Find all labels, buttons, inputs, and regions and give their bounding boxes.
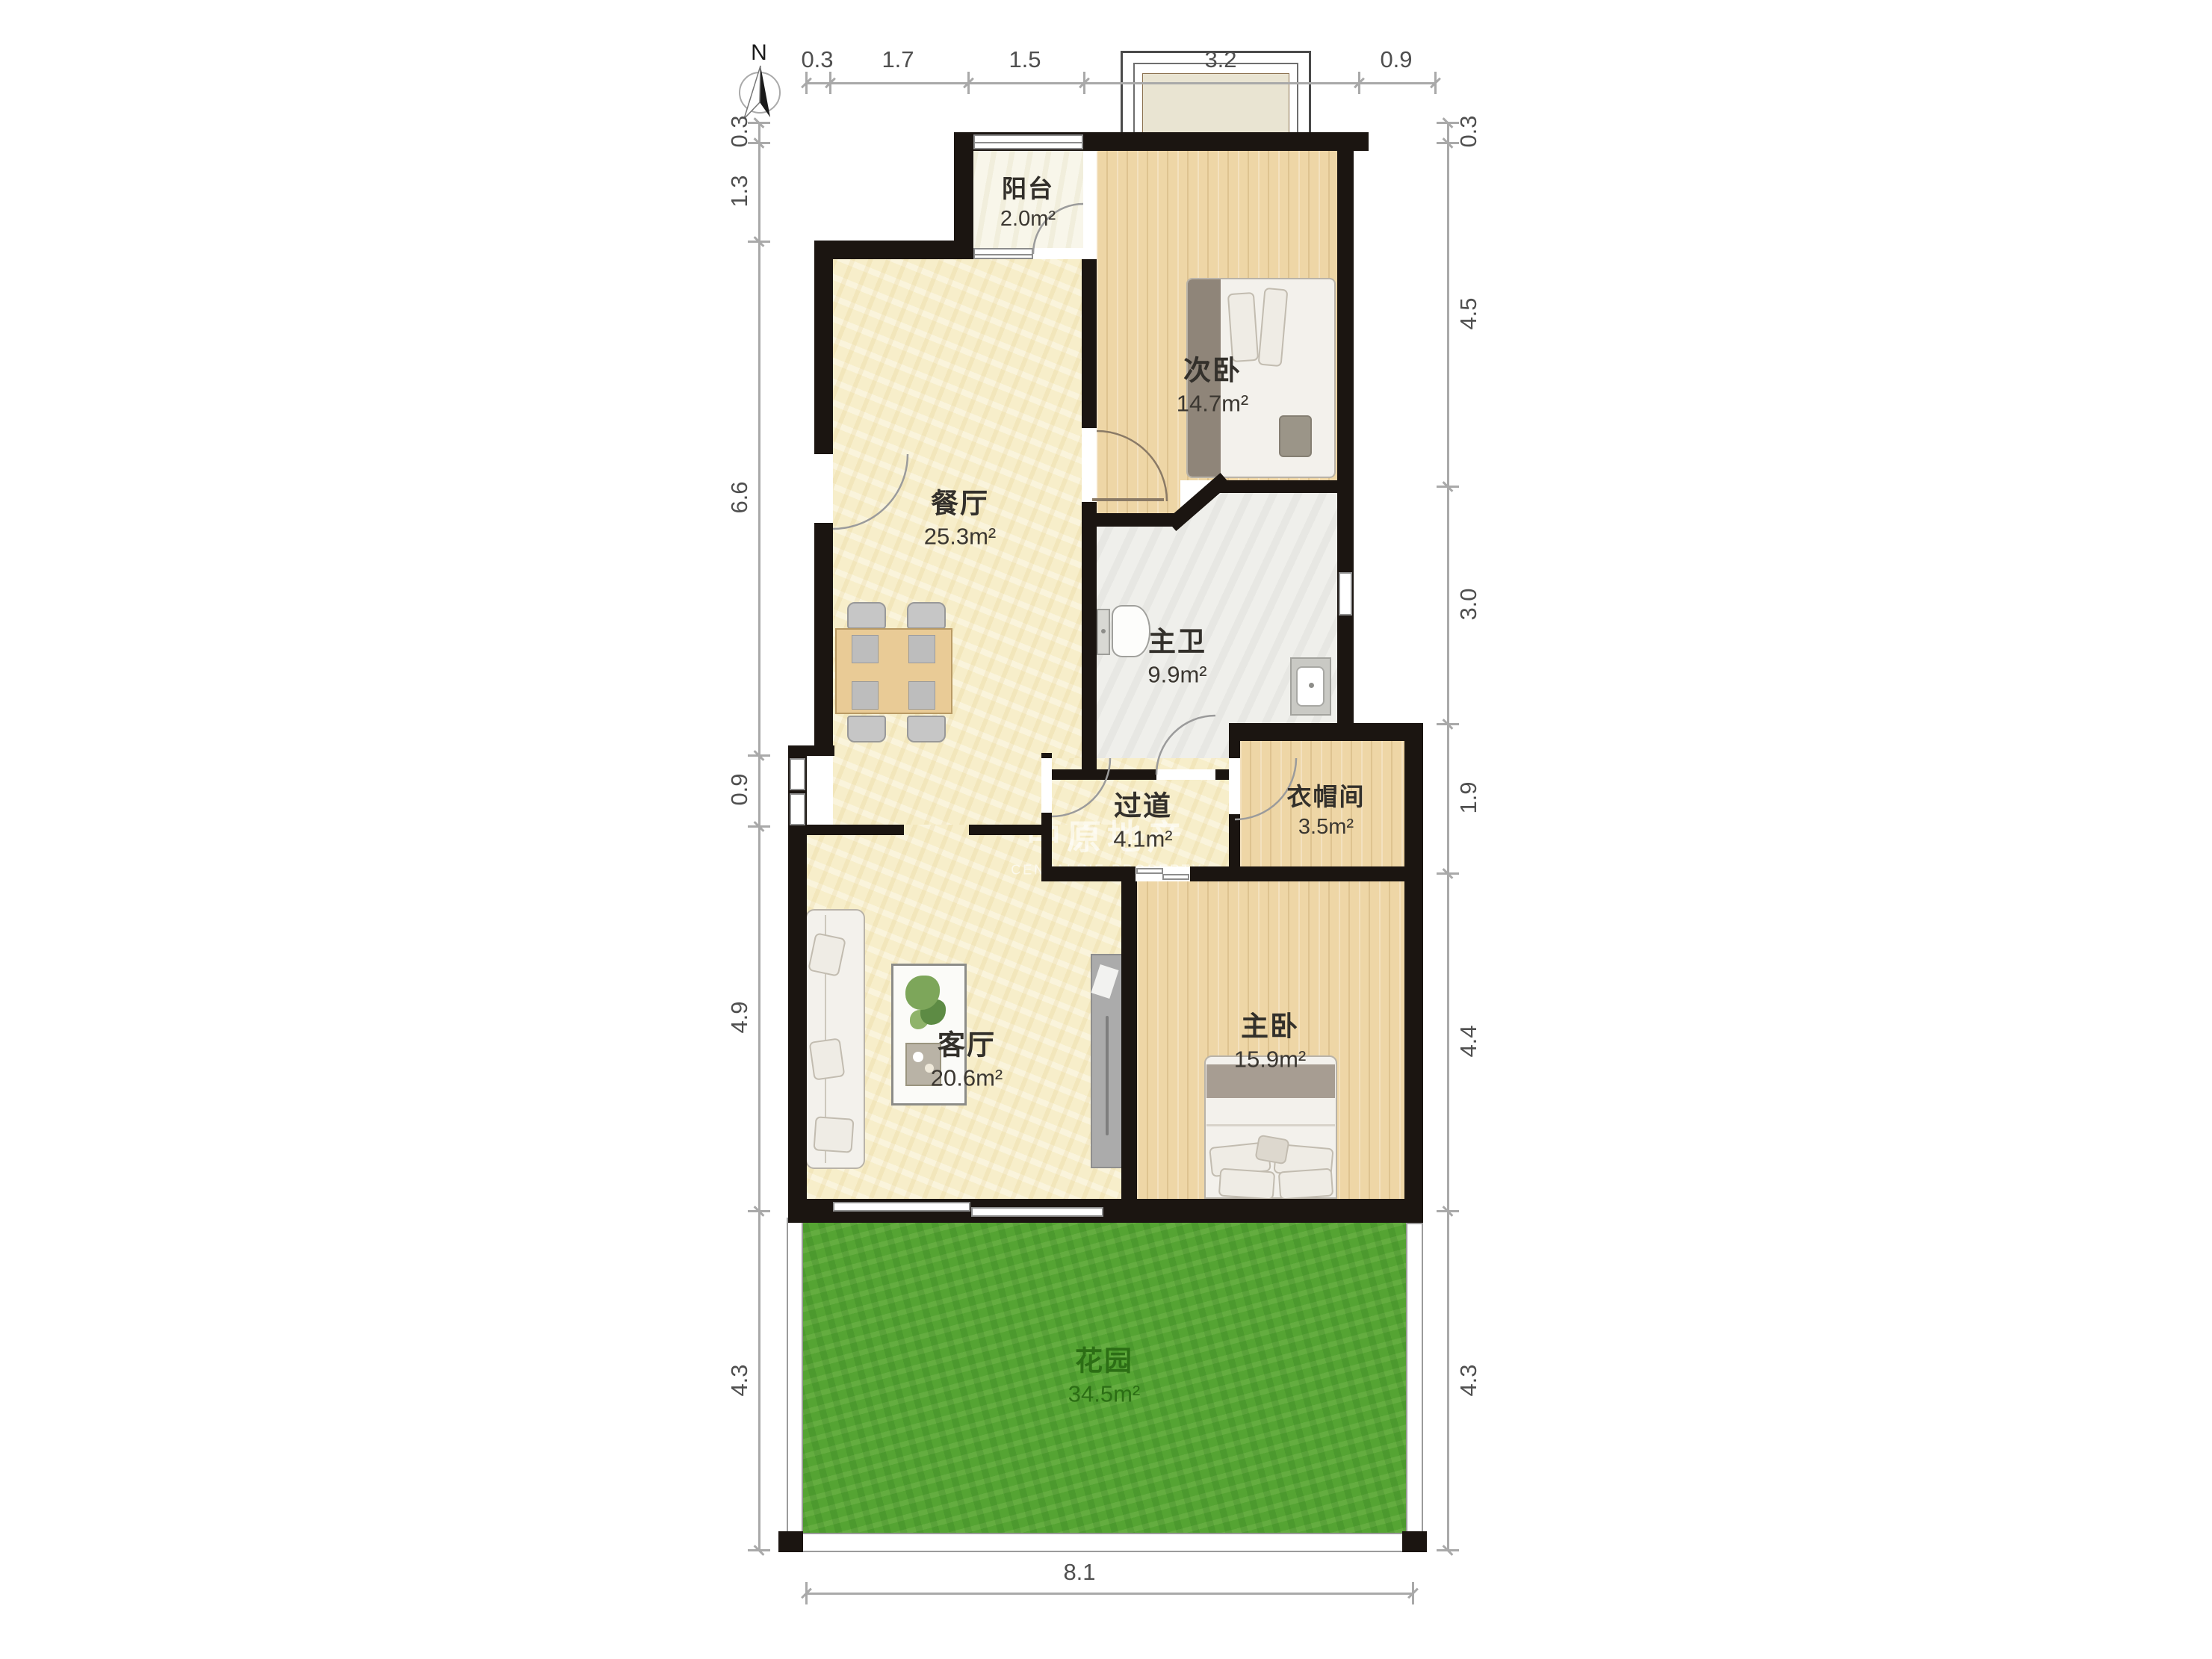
- dim-bottom-1: 8.1: [1063, 1559, 1095, 1586]
- room-label-hallway: 过道 4.1m²: [1113, 784, 1172, 853]
- dim-line-top: [805, 82, 1434, 84]
- sink-faucet-dot: [1309, 683, 1314, 688]
- wall-left-upper2: [814, 523, 833, 754]
- dim-line-left: [758, 122, 760, 1551]
- dim-tick: [1437, 872, 1459, 875]
- wall-hall-left-upper: [1041, 753, 1052, 758]
- dim-tick: [1083, 72, 1085, 94]
- wall-dining-top: [814, 241, 964, 259]
- closet-door-opening: [1229, 758, 1240, 814]
- dim-tick: [1437, 723, 1459, 725]
- dim-tick: [1434, 72, 1437, 94]
- dim-right-6: 4.3: [1455, 1364, 1482, 1396]
- side-window-lower: [790, 793, 805, 825]
- dining-name: 餐厅: [924, 481, 996, 521]
- living-area: 20.6m²: [931, 1065, 1003, 1092]
- wall-dining-bath: [1082, 527, 1097, 769]
- wall-hall-left-lower: [1041, 813, 1052, 869]
- garden-post-bottom-left: [778, 1531, 803, 1552]
- wall-bath-bottom-left: [1052, 769, 1156, 780]
- wall-right-lower: [1404, 725, 1423, 1223]
- room-label-closet: 衣帽间 3.5m²: [1287, 777, 1366, 840]
- master-bedroom-area: 15.9m²: [1234, 1046, 1306, 1073]
- patio-slider-panel: [971, 1207, 1103, 1217]
- room-label-garden: 花园 34.5m²: [1068, 1339, 1140, 1408]
- living-name: 客厅: [931, 1023, 1003, 1063]
- dim-left-4: 0.9: [726, 773, 753, 805]
- closet-name: 衣帽间: [1287, 777, 1366, 813]
- garden-fence-right: [1406, 1223, 1423, 1552]
- dining-door-opening: [814, 454, 833, 523]
- dim-tick: [805, 1582, 808, 1604]
- room-label-master-bathroom: 主卫 9.9m²: [1147, 619, 1206, 689]
- dim-left-6: 4.3: [726, 1364, 753, 1396]
- balcony-area: 2.0m²: [1000, 207, 1056, 232]
- master-bathroom-area: 9.9m²: [1147, 662, 1206, 689]
- sofa-cushion: [813, 1116, 854, 1153]
- bed-pillow: [1278, 1168, 1333, 1200]
- wall-closet-left-upper: [1229, 741, 1240, 758]
- dim-right-3: 3.0: [1455, 588, 1482, 620]
- dim-line-right: [1447, 122, 1449, 1551]
- dim-right-5: 4.4: [1455, 1025, 1482, 1057]
- dim-tick: [1437, 1549, 1459, 1551]
- balcony-name: 阳台: [1000, 169, 1056, 205]
- compass-north-label: N: [751, 40, 767, 66]
- wall-left-upper: [814, 259, 833, 454]
- wall-master-left: [1121, 866, 1137, 1223]
- place-setting: [908, 635, 935, 663]
- dim-line-bottom: [805, 1593, 1414, 1595]
- dim-left-3: 6.6: [726, 481, 753, 513]
- wall-right-upper: [1337, 132, 1354, 725]
- dim-left-2: 1.3: [726, 175, 753, 207]
- patio-slider-panel: [833, 1202, 970, 1212]
- balcony-sill-window: [973, 248, 1033, 259]
- dim-tick: [1437, 486, 1459, 488]
- room-label-second-bedroom: 次卧 14.7m²: [1177, 348, 1248, 418]
- second-bedroom-name: 次卧: [1177, 348, 1248, 388]
- dim-tick: [748, 1549, 770, 1551]
- wall-closet-top: [1229, 723, 1423, 741]
- dining-chair: [847, 716, 886, 742]
- compass-needle-dark: [760, 66, 770, 117]
- wall-bath-bottom-right: [1215, 769, 1229, 780]
- bathroom-door-opening: [1156, 769, 1215, 780]
- garden-name: 花园: [1068, 1339, 1140, 1379]
- dining-chair: [907, 716, 946, 742]
- wall-hall-bottom-right: [1190, 866, 1423, 881]
- compass-circle: [740, 72, 780, 113]
- master-bed-sheet-line: [1206, 1124, 1335, 1126]
- hallway-door-opening: [1041, 758, 1052, 813]
- toilet-bowl: [1112, 605, 1150, 657]
- dim-tick: [748, 1210, 770, 1212]
- master-bathroom-name: 主卫: [1147, 619, 1206, 660]
- balcony-door-opening: [1033, 248, 1083, 259]
- dim-tick: [967, 72, 970, 94]
- wall-bedroom2-bottom-left: [1082, 513, 1180, 527]
- room-label-dining: 餐厅 25.3m²: [924, 481, 996, 551]
- dining-chair: [907, 602, 946, 629]
- dining-chair: [847, 602, 886, 629]
- dim-top-5: 0.9: [1380, 46, 1412, 73]
- room-label-balcony: 阳台 2.0m²: [1000, 169, 1056, 232]
- side-window-upper: [790, 758, 805, 790]
- tray-cup: [913, 1052, 923, 1062]
- toilet-flush-dot: [1101, 629, 1106, 633]
- floor-plan-canvas: 中原地产 CENTALINE PROPERTY: [0, 0, 2212, 1659]
- hallway-area: 4.1m²: [1113, 826, 1172, 853]
- wall-bedroom2-left-upper: [1082, 259, 1097, 428]
- room-label-living: 客厅 20.6m²: [931, 1023, 1003, 1092]
- dim-left-1: 0.3: [726, 115, 753, 147]
- dim-right-2: 4.5: [1455, 297, 1482, 329]
- dim-tick: [1412, 1582, 1414, 1604]
- dim-right-1: 0.3: [1455, 115, 1482, 147]
- dim-tick: [1358, 72, 1360, 94]
- dim-tick: [829, 72, 831, 94]
- place-setting: [852, 635, 879, 663]
- dim-tick: [805, 72, 808, 94]
- dim-top-4: 3.2: [1204, 46, 1236, 73]
- compass-needle-light: [744, 66, 760, 119]
- second-bedroom-floor-ext: [1097, 480, 1180, 515]
- garden-fence-bottom: [787, 1533, 1423, 1552]
- wall-divider-left: [805, 825, 904, 835]
- garden-post-bottom-right: [1402, 1531, 1427, 1552]
- wall-divider-right: [969, 825, 1041, 835]
- bed-small-pillow: [1254, 1135, 1289, 1165]
- second-bedroom-area: 14.7m²: [1177, 391, 1248, 418]
- dim-left-5: 4.9: [726, 1001, 753, 1033]
- master-opening-panel: [1136, 868, 1163, 874]
- dim-right-4: 1.9: [1455, 781, 1482, 813]
- dim-tick: [748, 241, 770, 243]
- hallway-name: 过道: [1113, 784, 1172, 824]
- dim-tick: [1437, 1210, 1459, 1212]
- bed-cushion: [1279, 415, 1312, 457]
- dim-top-3: 1.5: [1009, 46, 1041, 73]
- dim-tick: [748, 754, 770, 757]
- closet-area: 3.5m²: [1287, 815, 1366, 840]
- place-setting: [852, 681, 879, 710]
- dim-tick: [748, 825, 770, 828]
- bed-pillow: [1218, 1167, 1275, 1200]
- master-opening-panel: [1162, 874, 1189, 880]
- dim-top-2: 1.7: [882, 46, 914, 73]
- place-setting: [908, 681, 935, 710]
- sofa-pillow: [809, 1038, 846, 1080]
- bathroom-window: [1339, 572, 1352, 615]
- garden-fence-left: [787, 1218, 803, 1552]
- tv-screen-line: [1106, 1016, 1109, 1135]
- room-label-master-bedroom: 主卧 15.9m²: [1234, 1004, 1306, 1073]
- master-bedroom-name: 主卧: [1234, 1004, 1306, 1044]
- balcony-window: [973, 134, 1083, 149]
- dining-area: 25.3m²: [924, 524, 996, 551]
- wall-closet-left-lower: [1229, 814, 1240, 869]
- second-bedroom-door-opening: [1082, 428, 1097, 502]
- wall-bathroom-top: [1218, 480, 1337, 493]
- garden-area: 34.5m²: [1068, 1381, 1140, 1408]
- dim-top-1: 0.3: [801, 46, 833, 73]
